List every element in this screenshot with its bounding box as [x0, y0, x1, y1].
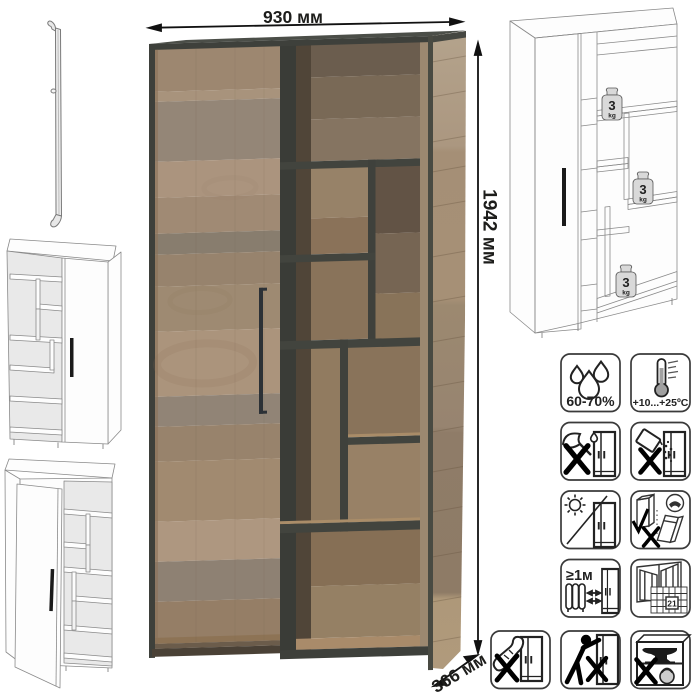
- svg-text:3: 3: [608, 98, 615, 113]
- svg-text:kg: kg: [622, 290, 630, 297]
- svg-text:kg: kg: [608, 113, 616, 120]
- svg-text:kg: kg: [639, 197, 647, 204]
- svg-text:60-70%: 60-70%: [566, 393, 615, 409]
- svg-text:≥1м: ≥1м: [566, 568, 593, 584]
- svg-text:3: 3: [639, 182, 646, 197]
- svg-text:21: 21: [667, 599, 677, 609]
- svg-text:3: 3: [622, 275, 629, 290]
- svg-text:1942 мм: 1942 мм: [479, 189, 500, 265]
- svg-text:930 мм: 930 мм: [263, 7, 323, 27]
- svg-text:+10...+25ºC: +10...+25ºC: [633, 397, 689, 409]
